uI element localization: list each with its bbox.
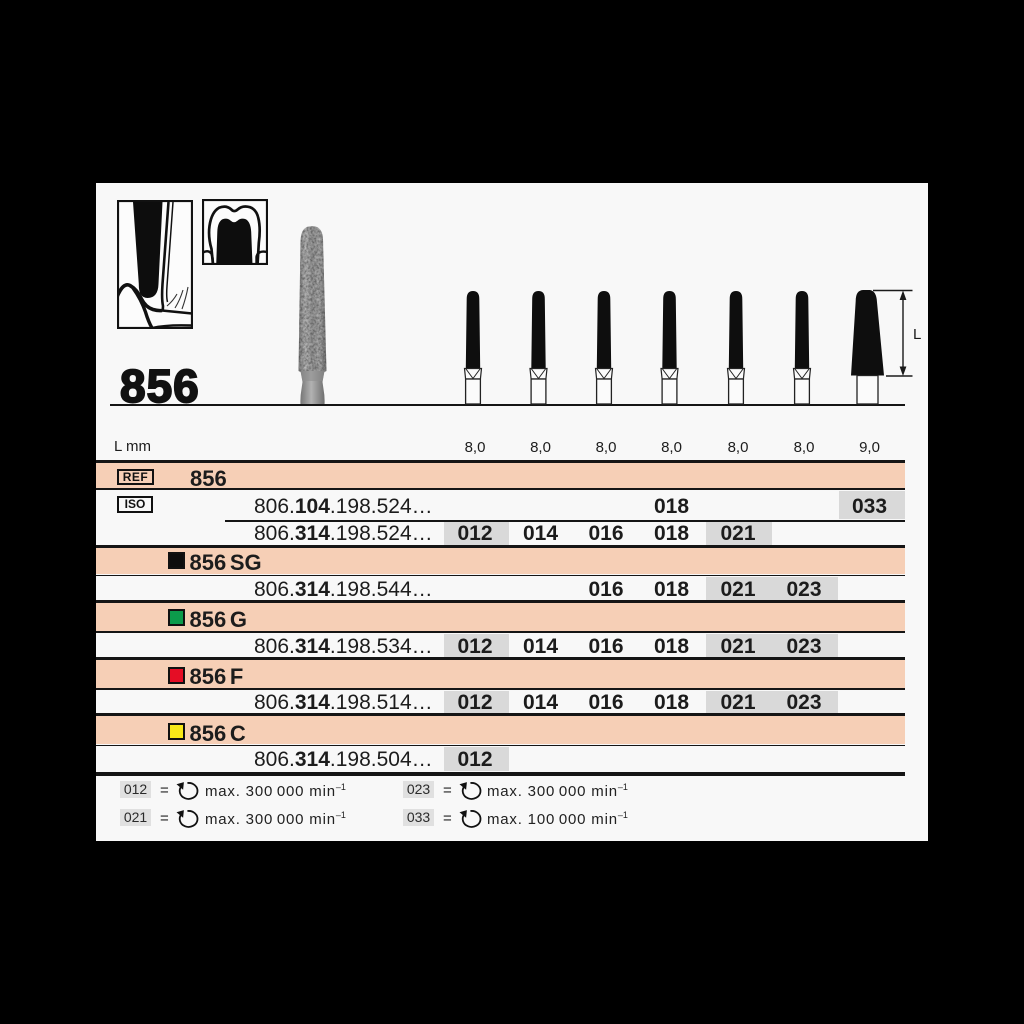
svg-text:856: 856 (120, 360, 200, 408)
svg-text:L: L (913, 326, 921, 343)
